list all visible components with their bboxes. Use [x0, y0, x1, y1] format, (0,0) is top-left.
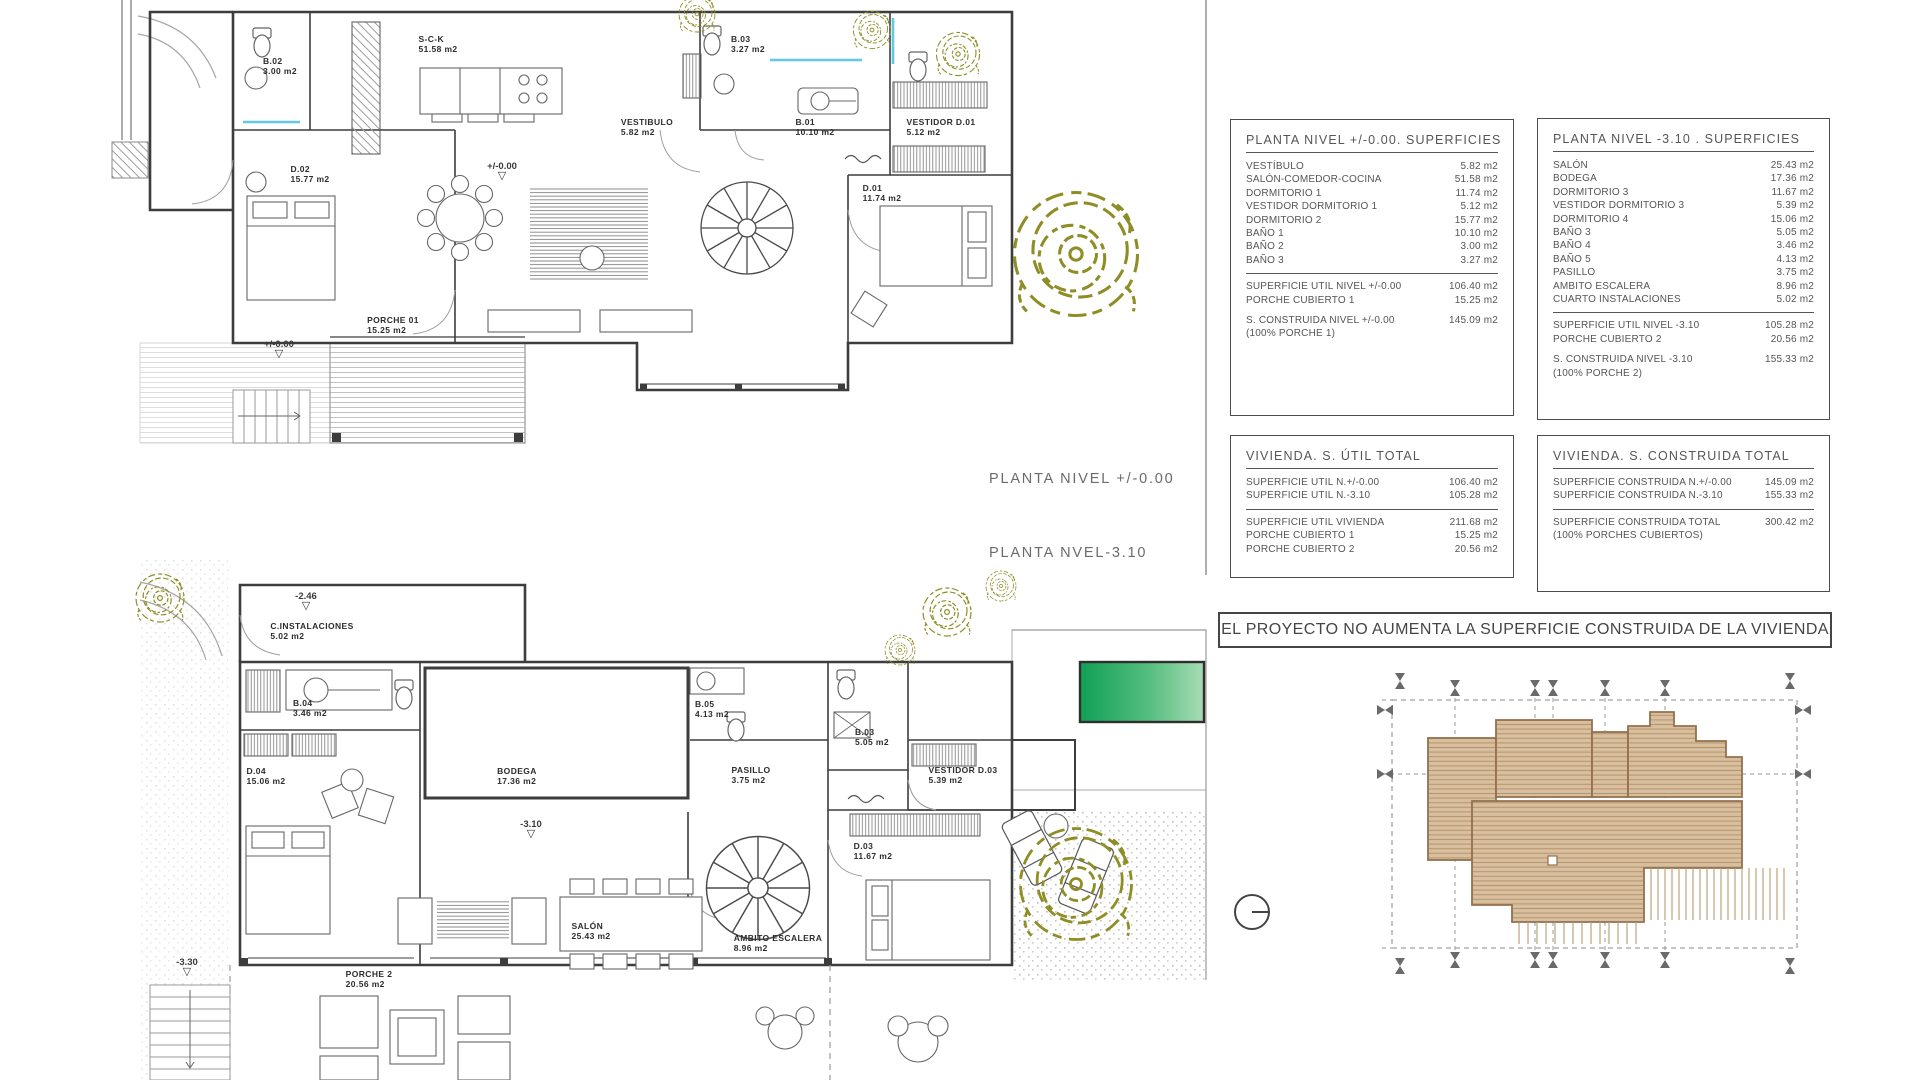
row-label: SUPERFICIE UTIL VIVIENDA — [1246, 516, 1392, 529]
row-label: DORMITORIO 1 — [1246, 187, 1330, 200]
bath-fixtures-b03 — [683, 26, 734, 98]
straight-stair-hatch — [352, 22, 380, 154]
room-label-ambito-escalera: AMBITO ESCALERA8.96 m2 — [734, 933, 823, 953]
table-row: BAÑO 3 5.05 m2 — [1553, 226, 1814, 239]
wardrobe — [292, 734, 336, 756]
wardrobe — [893, 82, 987, 108]
driveway-lines — [122, 0, 216, 140]
row-label: PORCHE CUBIERTO 2 — [1246, 543, 1363, 556]
table-row: SUPERFICIE UTIL VIVIENDA 211.68 m2 — [1246, 509, 1498, 529]
table-row: (100% PORCHES CUBIERTOS) — [1553, 529, 1814, 542]
table-row: PORCHE CUBIERTO 1 15.25 m2 — [1246, 294, 1498, 307]
row-label: AMBITO ESCALERA — [1553, 280, 1658, 293]
row-label: DORMITORIO 4 — [1553, 213, 1637, 226]
row-value: 15.25 m2 — [1455, 529, 1498, 542]
row-label: S. CONSTRUIDA NIVEL -3.10 — [1553, 353, 1701, 366]
table-row: SUPERFICIE UTIL N.+/-0.00 106.40 m2 — [1246, 476, 1498, 489]
row-value: 105.28 m2 — [1765, 319, 1814, 332]
table-row: DORMITORIO 3 11.67 m2 — [1553, 186, 1814, 199]
room-label-sck: S-C-K51.58 m2 — [418, 34, 457, 54]
row-label: (100% PORCHE 2) — [1553, 367, 1650, 380]
table-row: DORMITORIO 1 11.74 m2 — [1246, 187, 1498, 200]
porch-2-furniture — [320, 996, 948, 1080]
row-value: 145.09 m2 — [1765, 476, 1814, 489]
row-value: 5.02 m2 — [1776, 293, 1814, 306]
room-label-porche-2: PORCHE 220.56 m2 — [346, 969, 393, 989]
level-mark: +/-0.00▽ — [487, 162, 517, 182]
row-label: SUPERFICIE CONSTRUIDA N.-3.10 — [1553, 489, 1731, 502]
wardrobe — [893, 146, 985, 172]
table-row: BAÑO 5 4.13 m2 — [1553, 253, 1814, 266]
room-label-b02: B.023.00 m2 — [263, 56, 297, 76]
row-value: 15.77 m2 — [1455, 214, 1498, 227]
row-label: PORCHE CUBIERTO 1 — [1246, 529, 1363, 542]
sofa — [398, 898, 432, 944]
row-value: 155.33 m2 — [1765, 489, 1814, 502]
dining-table-round — [418, 176, 503, 261]
project-note-banner: EL PROYECTO NO AUMENTA LA SUPERFICIE CON… — [1218, 612, 1832, 648]
table-row: CUARTO INSTALACIONES 5.02 m2 — [1553, 293, 1814, 306]
armchairs-d04 — [322, 769, 394, 824]
table-title: VIVIENDA. S. ÚTIL TOTAL — [1246, 449, 1498, 469]
room-label-b03-lower: B.035.05 m2 — [855, 727, 889, 747]
table-row: DORMITORIO 2 15.77 m2 — [1246, 214, 1498, 227]
row-label: PASILLO — [1553, 266, 1603, 279]
row-value: 106.40 m2 — [1449, 476, 1498, 489]
row-value: 3.46 m2 — [1776, 239, 1814, 252]
table-row: BODEGA 17.36 m2 — [1553, 172, 1814, 185]
row-value: 51.58 m2 — [1455, 173, 1498, 186]
row-label: BAÑO 4 — [1553, 239, 1599, 252]
side-table — [1044, 814, 1068, 838]
spiral-stair — [701, 182, 793, 274]
sofa — [600, 310, 692, 332]
table-row: AMBITO ESCALERA 8.96 m2 — [1553, 280, 1814, 293]
row-value: 105.28 m2 — [1449, 489, 1498, 502]
row-value: 3.27 m2 — [1460, 254, 1498, 267]
row-label: PORCHE CUBIERTO 1 — [1246, 294, 1363, 307]
highlighted-walls — [243, 18, 893, 122]
tree-icon — [885, 635, 915, 665]
row-label: DORMITORIO 2 — [1246, 214, 1330, 227]
row-label: SUPERFICIE UTIL N.-3.10 — [1246, 489, 1378, 502]
room-label-salon: SALÓN25.43 m2 — [571, 921, 610, 941]
table-row: SALÓN-COMEDOR-COCINA 51.58 m2 — [1246, 173, 1498, 186]
wall-break-squiggle — [845, 156, 881, 163]
row-value: 5.05 m2 — [1776, 226, 1814, 239]
row-value: 10.10 m2 — [1455, 227, 1498, 240]
row-value: 5.82 m2 — [1460, 160, 1498, 173]
row-value: 211.68 m2 — [1450, 516, 1498, 529]
room-label-d03: D.0311.67 m2 — [854, 841, 893, 861]
table-row: SUPERFICIE CONSTRUIDA N.-3.10 155.33 m2 — [1553, 489, 1814, 502]
row-value: 300.42 m2 — [1765, 516, 1814, 529]
tree-icon — [1015, 193, 1138, 316]
level-mark: -2.46▽ — [295, 592, 317, 612]
tree-icon — [679, 0, 715, 32]
floor-plan-sheet: B.023.00 m2 S-C-K51.58 m2 B.033.27 m2 VE… — [0, 0, 1920, 1080]
room-label-d04: D.0415.06 m2 — [246, 766, 285, 786]
row-value: 3.00 m2 — [1460, 240, 1498, 253]
salon-rug — [437, 900, 509, 940]
north-symbol-icon — [1235, 895, 1269, 929]
table-row: S. CONSTRUIDA NIVEL -3.10 155.33 m2 — [1553, 353, 1814, 366]
room-label-d02: D.0215.77 m2 — [290, 164, 329, 184]
table-row: PASILLO 3.75 m2 — [1553, 266, 1814, 279]
table-nivel-310-superficies: PLANTA NIVEL -3.10 . SUPERFICIES SALÓN 2… — [1537, 118, 1830, 420]
table-construida-total: VIVIENDA. S. CONSTRUIDA TOTAL SUPERFICIE… — [1537, 435, 1830, 592]
row-label: VESTÍBULO — [1246, 160, 1312, 173]
row-label: SUPERFICIE CONSTRUIDA N.+/-0.00 — [1553, 476, 1740, 489]
bed-d03 — [866, 880, 990, 960]
room-label-pasillo: PASILLO3.75 m2 — [731, 765, 770, 785]
row-label: VESTIDOR DORMITORIO 1 — [1246, 200, 1385, 213]
row-value: 8.96 m2 — [1776, 280, 1814, 293]
row-label: PORCHE CUBIERTO 2 — [1553, 333, 1670, 346]
room-label-b05: B.054.13 m2 — [695, 699, 729, 719]
table-title: PLANTA NIVEL -3.10 . SUPERFICIES — [1553, 132, 1814, 152]
table-row: SUPERFICIE CONSTRUIDA TOTAL 300.42 m2 — [1553, 509, 1814, 529]
row-label: CUARTO INSTALACIONES — [1553, 293, 1689, 306]
row-value: 4.13 m2 — [1776, 253, 1814, 266]
room-label-d01: D.0111.74 m2 — [863, 183, 902, 203]
coffee-table — [580, 246, 604, 270]
row-label: BODEGA — [1553, 172, 1605, 185]
table-nivel-0-superficies: PLANTA NIVEL +/-0.00. SUPERFICIES VESTÍB… — [1230, 119, 1514, 416]
room-label-vestidor-d01: VESTIDOR D.015.12 m2 — [907, 117, 976, 137]
level-mark: -3.30▽ — [176, 958, 198, 978]
room-label-b04: B.043.46 m2 — [293, 698, 327, 718]
row-label: BAÑO 5 — [1553, 253, 1599, 266]
row-value: 106.40 m2 — [1449, 280, 1498, 293]
table-row: (100% PORCHE 2) — [1553, 367, 1814, 380]
room-label-porche-01: PORCHE 0115.25 m2 — [367, 315, 419, 335]
room-label-b03: B.033.27 m2 — [731, 34, 765, 54]
row-label: BAÑO 3 — [1553, 226, 1599, 239]
row-value: 5.12 m2 — [1460, 200, 1498, 213]
row-value: 155.33 m2 — [1765, 353, 1814, 366]
roof-vent — [1548, 856, 1557, 865]
tree-icon — [986, 571, 1016, 601]
bed-d04 — [246, 826, 330, 934]
row-label: (100% PORCHES CUBIERTOS) — [1553, 529, 1711, 542]
table-title: VIVIENDA. S. CONSTRUIDA TOTAL — [1553, 449, 1814, 469]
table-util-total: VIVIENDA. S. ÚTIL TOTAL SUPERFICIE UTIL … — [1230, 435, 1514, 578]
bed-d02 — [246, 172, 335, 300]
roof-plan — [1377, 673, 1811, 974]
row-label: SALÓN-COMEDOR-COCINA — [1246, 173, 1390, 186]
row-label: SUPERFICIE UTIL NIVEL +/-0.00 — [1246, 280, 1409, 293]
row-label: S. CONSTRUIDA NIVEL +/-0.00 — [1246, 314, 1403, 327]
row-label: BAÑO 3 — [1246, 254, 1292, 267]
plan-title-upper: PLANTA NIVEL +/-0.00 — [989, 471, 1175, 487]
row-label: BAÑO 2 — [1246, 240, 1292, 253]
entry-step-hatch — [112, 142, 148, 178]
table-title: PLANTA NIVEL +/-0.00. SUPERFICIES — [1246, 133, 1498, 153]
row-label: SALÓN — [1553, 159, 1596, 172]
table-row: SUPERFICIE UTIL NIVEL +/-0.00 106.40 m2 — [1246, 273, 1498, 293]
exterior-steps — [233, 390, 310, 443]
table-row: VESTIDOR DORMITORIO 1 5.12 m2 — [1246, 200, 1498, 213]
row-value: 11.74 m2 — [1455, 187, 1498, 200]
plan-title-lower: PLANTA NVEL-3.10 — [989, 545, 1147, 561]
bath-fixtures-b04 — [246, 670, 413, 712]
table-row: BAÑO 2 3.00 m2 — [1246, 240, 1498, 253]
kitchen-island — [420, 68, 562, 122]
row-label: SUPERFICIE CONSTRUIDA TOTAL — [1553, 516, 1729, 529]
row-label: SUPERFICIE UTIL NIVEL -3.10 — [1553, 319, 1707, 332]
table-row: VESTIDOR DORMITORIO 3 5.39 m2 — [1553, 199, 1814, 212]
row-value: 15.06 m2 — [1771, 213, 1814, 226]
room-label-b01: B.0110.10 m2 — [795, 117, 834, 137]
table-row: S. CONSTRUIDA NIVEL +/-0.00 145.09 m2 — [1246, 314, 1498, 327]
table-row: (100% PORCHE 1) — [1246, 327, 1498, 340]
sofa — [512, 898, 546, 944]
sofa — [488, 310, 580, 332]
table-row: BAÑO 1 10.10 m2 — [1246, 227, 1498, 240]
wardrobe — [244, 734, 288, 756]
table-row: PORCHE CUBIERTO 2 20.56 m2 — [1553, 333, 1814, 346]
row-value: 15.25 m2 — [1455, 294, 1498, 307]
wardrobe — [850, 814, 980, 836]
row-value: 20.56 m2 — [1455, 543, 1498, 556]
tree-icon — [853, 11, 890, 48]
wall-break-squiggle — [848, 796, 884, 803]
spiral-stair — [706, 836, 809, 939]
room-label-bodega: BODEGA17.36 m2 — [497, 766, 537, 786]
level-mark: +/-0.00▽ — [264, 340, 294, 360]
table-row: VESTÍBULO 5.82 m2 — [1246, 160, 1498, 173]
table-row: DORMITORIO 4 15.06 m2 — [1553, 213, 1814, 226]
row-label: VESTIDOR DORMITORIO 3 — [1553, 199, 1692, 212]
row-value: 20.56 m2 — [1771, 333, 1814, 346]
porch-01-floor — [330, 343, 525, 443]
table-row: BAÑO 4 3.46 m2 — [1553, 239, 1814, 252]
row-value: 145.09 m2 — [1449, 314, 1498, 327]
level-mark: -3.10▽ — [520, 820, 542, 840]
bed-d01 — [851, 206, 992, 327]
tree-icon — [923, 588, 971, 636]
row-value: 17.36 m2 — [1771, 172, 1814, 185]
room-label-vestidor-d03: VESTIDOR D.035.39 m2 — [929, 765, 998, 785]
table-row: SALÓN 25.43 m2 — [1553, 159, 1814, 172]
row-value: 5.39 m2 — [1776, 199, 1814, 212]
wardrobe — [912, 744, 976, 766]
table-row: PORCHE CUBIERTO 2 20.56 m2 — [1246, 543, 1498, 556]
table-row: SUPERFICIE CONSTRUIDA N.+/-0.00 145.09 m… — [1553, 476, 1814, 489]
tree-icon — [936, 32, 979, 75]
exterior-steps-lower — [150, 985, 230, 1080]
row-value: 25.43 m2 — [1771, 159, 1814, 172]
row-label: DORMITORIO 3 — [1553, 186, 1637, 199]
row-label: (100% PORCHE 1) — [1246, 327, 1343, 340]
table-row: SUPERFICIE UTIL NIVEL -3.10 105.28 m2 — [1553, 312, 1814, 332]
room-label-instalaciones: C.INSTALACIONES5.02 m2 — [270, 621, 353, 641]
table-row: BAÑO 3 3.27 m2 — [1246, 254, 1498, 267]
table-row: PORCHE CUBIERTO 1 15.25 m2 — [1246, 529, 1498, 542]
roof-masses — [1428, 712, 1742, 922]
row-label: BAÑO 1 — [1246, 227, 1292, 240]
row-value: 3.75 m2 — [1776, 266, 1814, 279]
row-label: SUPERFICIE UTIL N.+/-0.00 — [1246, 476, 1387, 489]
room-label-vestibulo: VESTIBULO5.82 m2 — [621, 117, 673, 137]
row-value: 11.67 m2 — [1771, 186, 1814, 199]
swimming-pool — [1080, 662, 1204, 722]
table-row: SUPERFICIE UTIL N.-3.10 105.28 m2 — [1246, 489, 1498, 502]
